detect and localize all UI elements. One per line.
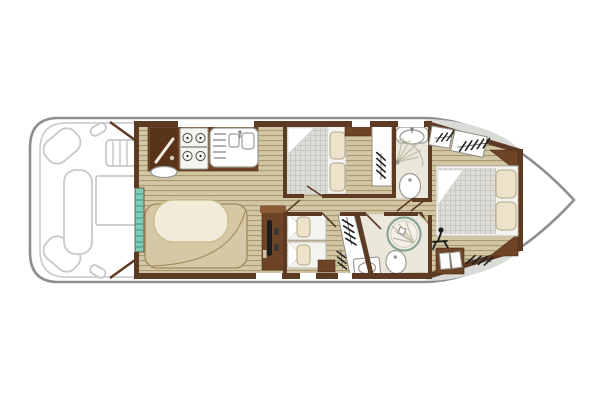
bedside-shelf	[345, 126, 371, 136]
floor-plan-canvas	[0, 0, 600, 400]
single-bed-1	[288, 214, 326, 240]
pillow	[330, 132, 345, 159]
steering-wheel-icon	[267, 220, 272, 256]
round-shower-icon	[388, 218, 421, 251]
pillow	[496, 170, 516, 198]
stove-icon	[180, 128, 208, 169]
pillow	[297, 217, 310, 237]
toilet-icon	[400, 174, 421, 199]
bow-cabinet	[436, 248, 464, 274]
boat-floor-plan	[0, 0, 600, 400]
dinette-table	[154, 200, 228, 242]
galley-end-shelf	[151, 167, 177, 178]
pillow	[330, 163, 345, 191]
helm-console	[260, 206, 286, 270]
galley-cabinet	[150, 128, 178, 169]
foot-cabinet	[318, 260, 335, 272]
bow-bulkhead	[518, 149, 523, 251]
bow-double-bed	[436, 166, 518, 236]
port-bathroom	[394, 126, 430, 199]
wardrobe-port	[372, 126, 392, 186]
pillow	[297, 245, 310, 265]
washbasin-icon	[396, 127, 428, 144]
dinette	[145, 200, 247, 268]
side-bench	[64, 170, 92, 254]
boarding-steps	[106, 140, 136, 166]
sink-icon	[210, 128, 258, 167]
deck-table	[96, 176, 136, 225]
port-cabin	[286, 126, 392, 194]
pillow	[496, 202, 516, 230]
